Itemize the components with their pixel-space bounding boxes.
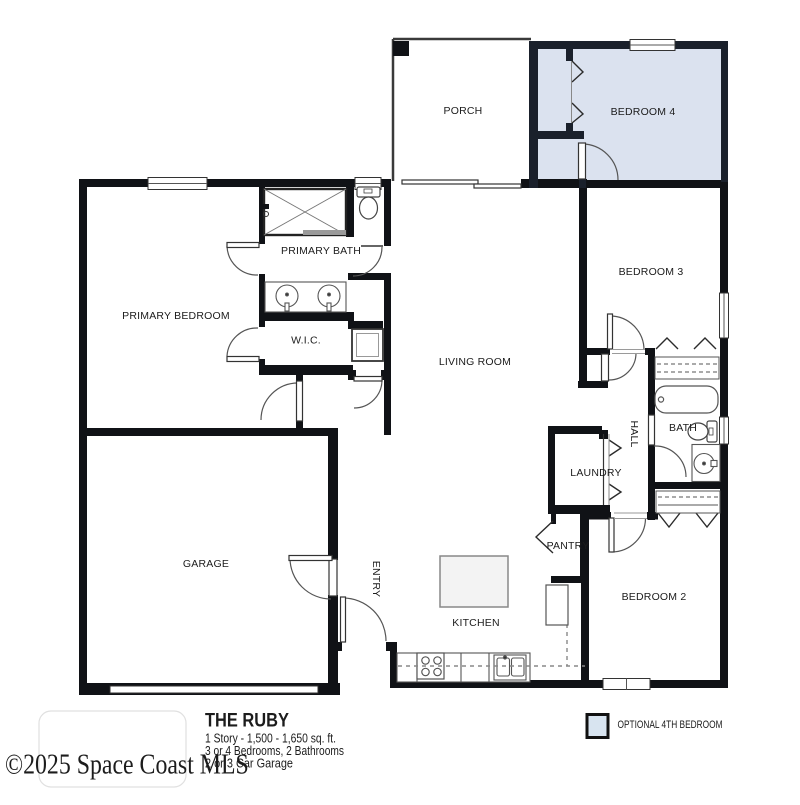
svg-text:GARAGE: GARAGE	[183, 558, 229, 570]
svg-text:THE RUBY: THE RUBY	[205, 711, 289, 732]
svg-text:BEDROOM 3: BEDROOM 3	[619, 266, 684, 278]
svg-text:W.I.C.: W.I.C.	[291, 335, 321, 347]
svg-text:LAUNDRY: LAUNDRY	[570, 467, 621, 479]
svg-text:BEDROOM 4: BEDROOM 4	[611, 106, 676, 118]
svg-text:PRIMARY BATH: PRIMARY BATH	[281, 245, 361, 257]
svg-text:©2025 Space Coast MLS: ©2025 Space Coast MLS	[5, 747, 249, 780]
svg-text:PANTRY: PANTRY	[547, 540, 590, 552]
svg-text:PORCH: PORCH	[444, 105, 483, 117]
svg-text:ENTRY: ENTRY	[370, 561, 382, 597]
svg-text:HALL: HALL	[628, 420, 640, 447]
svg-text:BATH: BATH	[669, 422, 697, 434]
svg-text:OPTIONAL 4TH BEDROOM: OPTIONAL 4TH BEDROOM	[618, 719, 723, 731]
svg-text:BEDROOM 2: BEDROOM 2	[622, 591, 687, 603]
svg-text:KITCHEN: KITCHEN	[452, 617, 500, 629]
svg-text:LIVING ROOM: LIVING ROOM	[439, 356, 511, 368]
svg-text:PRIMARY BEDROOM: PRIMARY BEDROOM	[122, 310, 230, 322]
